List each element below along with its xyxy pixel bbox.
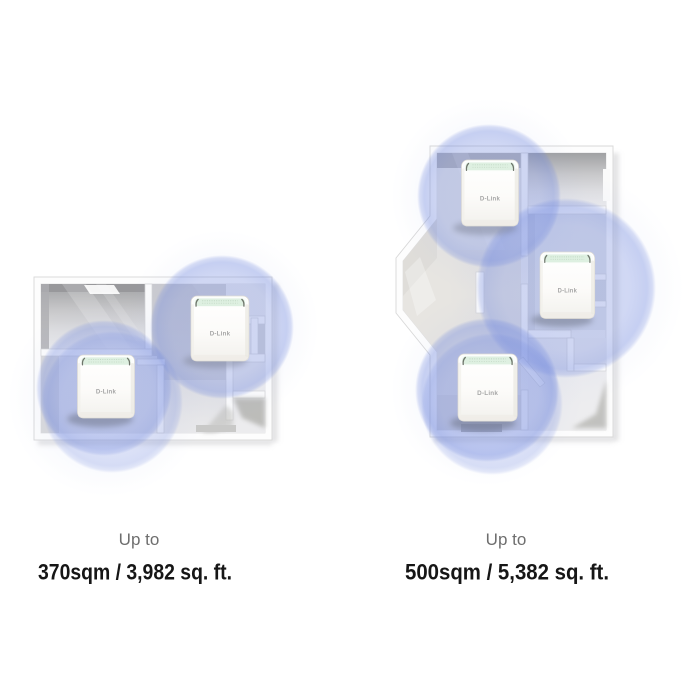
svg-text:370sqm / 3,982 sq. ft.: 370sqm / 3,982 sq. ft.	[38, 560, 232, 585]
svg-text:500sqm / 5,382 sq. ft.: 500sqm / 5,382 sq. ft.	[405, 560, 609, 585]
svg-text:Up to: Up to	[486, 530, 527, 549]
svg-text:Up to: Up to	[119, 530, 160, 549]
